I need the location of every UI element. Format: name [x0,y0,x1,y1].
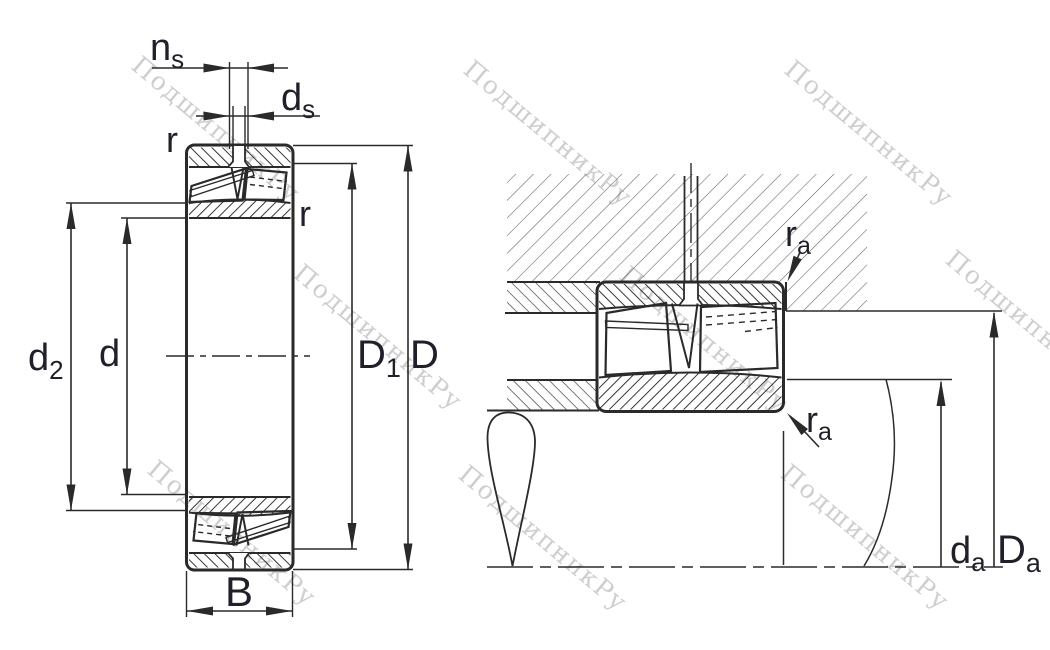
outer-ring-bottom [189,553,291,569]
watermark: ПодшипникРу [453,459,634,617]
label-ra-bottom: ra [806,399,832,446]
dimension-D1: D1 [348,164,401,550]
label-d: d [99,333,120,375]
label-d2: d2 [28,337,64,385]
dimension-ns: ns [150,27,288,74]
outer-ring-top [189,146,291,167]
dimension-d2: d2 [28,203,76,511]
label-Da: Da [997,528,1042,578]
label-D: D [410,333,439,377]
label-da: da [950,530,986,577]
technical-drawing: ПодшипникРу ПодшипникРу ПодшипникРу Подш… [0,0,1050,650]
watermark: ПодшипникРу [126,50,307,208]
label-ds: ds [281,77,315,124]
mounted-inner-ring [599,373,782,410]
watermark-layer: ПодшипникРу ПодшипникРу ПодшипникРу Подш… [126,50,1050,617]
inner-ring-top [189,200,291,219]
label-r-right: r [299,193,311,234]
watermark: ПодшипникРу [775,458,956,616]
label-ns: ns [150,27,184,74]
drawing-canvas: ПодшипникРу ПодшипникРу ПодшипникРу Подш… [0,0,1050,650]
dimension-d: d [99,218,132,495]
dimension-ra-bottom: ra [784,399,832,447]
dimension-ds: ds [196,77,320,124]
label-r-top: r [166,119,178,160]
label-B: B [225,568,253,615]
dimension-Da: Da [990,312,1042,579]
